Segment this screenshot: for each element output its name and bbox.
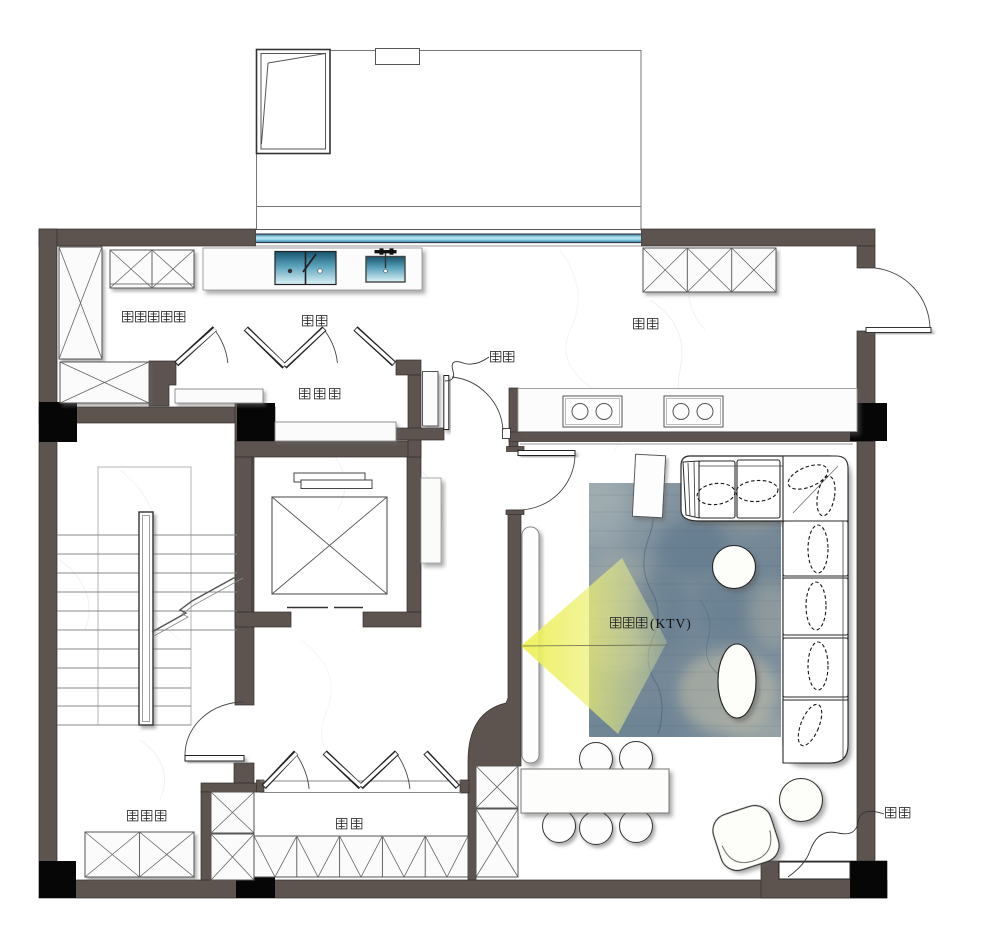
svg-text:(KTV): (KTV) bbox=[650, 616, 692, 631]
